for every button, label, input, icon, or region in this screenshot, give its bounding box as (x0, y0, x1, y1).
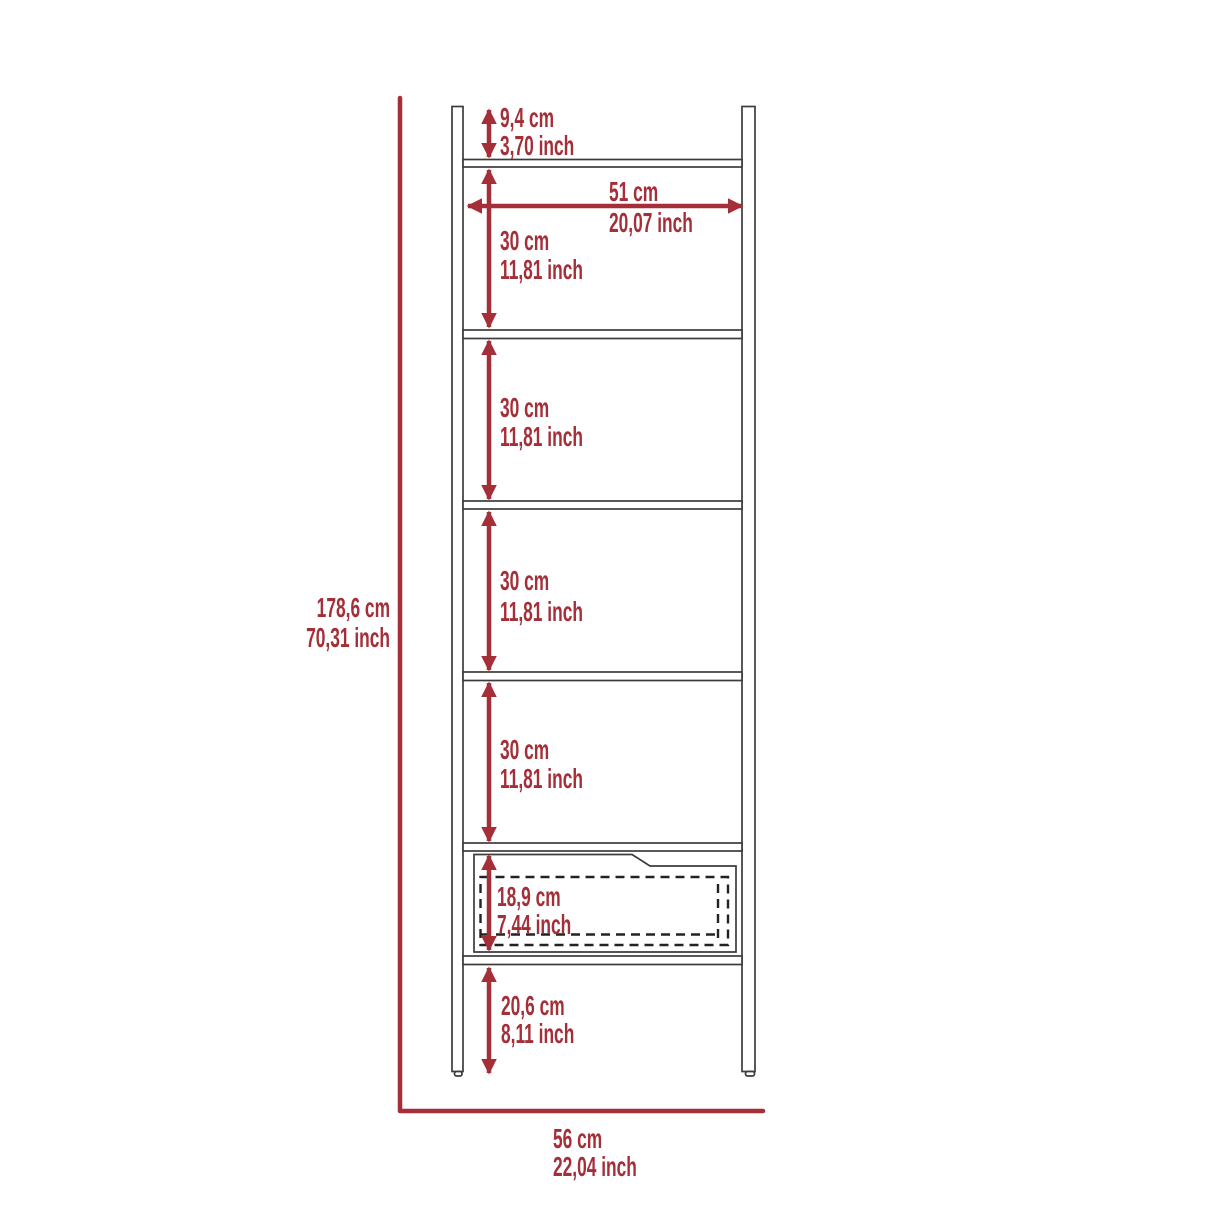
left-foot (455, 1072, 463, 1077)
right-foot (746, 1072, 755, 1077)
label-shelf-gap-3-inch: 11,81 inch (500, 596, 583, 627)
label-shelf-gap-4-cm: 30 cm (500, 734, 549, 765)
label-total-height-cm: 178,6 cm (317, 592, 390, 623)
label-bottom-clearance-inch: 8,11 inch (501, 1018, 574, 1049)
furniture-dimension-diagram: 9,4 cm 3,70 inch 51 cm 20,07 inch 30 cm … (0, 0, 1214, 1214)
label-top-gap-inch: 3,70 inch (500, 130, 574, 161)
label-shelf-gap-2-cm: 30 cm (500, 392, 549, 423)
shelf-3 (463, 501, 742, 509)
label-shelf-gap-3-cm: 30 cm (500, 565, 549, 596)
shelf-6 (463, 956, 742, 965)
diagram-canvas: 9,4 cm 3,70 inch 51 cm 20,07 inch 30 cm … (0, 0, 1214, 1214)
right-rail (742, 107, 755, 1072)
shelf-5 (463, 843, 742, 851)
label-drawer-height-cm: 18,9 cm (497, 881, 561, 912)
label-base-width-cm: 56 cm (553, 1123, 602, 1154)
label-shelf-gap-2-inch: 11,81 inch (500, 421, 583, 452)
left-rail (452, 107, 463, 1072)
label-base-width-inch: 22,04 inch (553, 1151, 637, 1182)
label-shelf-gap-4-inch: 11,81 inch (500, 763, 583, 794)
label-shelf-gap-1-inch: 11,81 inch (500, 254, 583, 285)
label-top-gap-cm: 9,4 cm (500, 102, 554, 133)
label-inner-width-cm: 51 cm (609, 176, 658, 207)
label-shelf-gap-1-cm: 30 cm (500, 225, 549, 256)
label-total-height-inch: 70,31 inch (306, 622, 390, 653)
shelf-4 (463, 672, 742, 681)
label-drawer-height-inch: 7,44 inch (497, 909, 571, 940)
shelf-2 (463, 330, 742, 339)
label-inner-width-inch: 20,07 inch (609, 207, 693, 238)
dimension-annotations: 9,4 cm 3,70 inch 51 cm 20,07 inch 30 cm … (306, 98, 763, 1182)
label-bottom-clearance-cm: 20,6 cm (501, 990, 565, 1021)
